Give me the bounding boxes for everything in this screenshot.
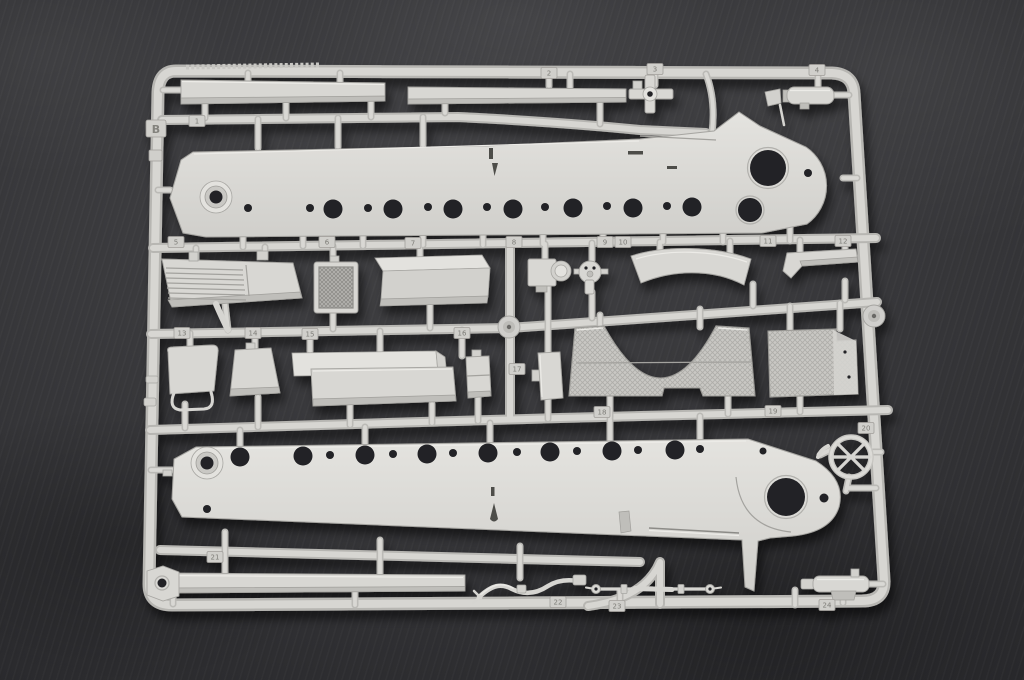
part-number-tag: 6 [319, 237, 335, 248]
svg-text:11: 11 [764, 238, 773, 246]
part-number-tag: 12 [835, 236, 851, 247]
part-cross-fitting [629, 75, 673, 113]
part-long-strip-1 [181, 80, 385, 104]
part-number-tag: 15 [302, 329, 318, 340]
part-number-tag: 7 [405, 238, 421, 249]
svg-text:9: 9 [603, 239, 607, 247]
part-hub-fitting [574, 261, 608, 294]
svg-text:14: 14 [249, 330, 258, 338]
part-number-tag: 20 [858, 423, 874, 434]
part-number-tag: 17 [509, 364, 525, 375]
part-number-tag: 8 [506, 237, 522, 248]
injection-node [498, 316, 520, 338]
svg-text:21: 21 [211, 554, 220, 562]
part-muffler-cylinder [765, 87, 834, 125]
part-number-tag: 2 [541, 68, 557, 79]
part-tie-rod [586, 585, 721, 594]
part-number-tag: 1 [189, 116, 205, 127]
part-stowage-box [375, 255, 490, 306]
svg-text:15: 15 [306, 331, 315, 339]
part-number-tag: 24 [819, 600, 835, 611]
svg-text:23: 23 [613, 603, 622, 611]
svg-text:5: 5 [174, 239, 178, 247]
svg-text:4: 4 [815, 67, 820, 75]
part-number-tag: 16 [454, 328, 470, 339]
part-small-box [466, 350, 491, 398]
part-stepped-boxes [292, 351, 456, 406]
part-number-tag: 4 [809, 65, 825, 76]
sprue-b-frame: B [0, 0, 1024, 680]
svg-text:12: 12 [839, 238, 848, 246]
svg-text:20: 20 [862, 425, 871, 433]
svg-text:22: 22 [554, 599, 563, 607]
svg-text:1: 1 [195, 118, 199, 126]
sprue-letter: B [152, 123, 160, 136]
svg-text:18: 18 [598, 409, 607, 417]
svg-text:19: 19 [769, 408, 778, 416]
part-number-tag: 22 [550, 597, 566, 608]
part-number-tag: 5 [168, 237, 184, 248]
svg-text:17: 17 [513, 366, 522, 374]
part-mesh-grille-small [314, 256, 358, 313]
part-mesh-saddle [569, 326, 755, 396]
svg-text:6: 6 [325, 239, 330, 247]
svg-text:13: 13 [178, 330, 187, 338]
part-curved-fender-strip [631, 248, 751, 285]
part-number-tag: 3 [647, 64, 663, 75]
part-louvered-panel [162, 251, 302, 330]
injection-node [863, 305, 885, 327]
part-angled-strip [783, 249, 858, 278]
part-number-tag: 18 [594, 407, 610, 418]
svg-text:8: 8 [512, 239, 516, 247]
part-number-tag: 11 [760, 236, 776, 247]
part-number-tag: 23 [609, 601, 625, 612]
part-trapezoid-panel [230, 343, 280, 396]
part-long-strip-2 [408, 87, 626, 104]
part-mesh-panel [768, 329, 858, 397]
svg-text:2: 2 [547, 70, 551, 78]
part-number-tag: 9 [597, 237, 613, 248]
part-long-bar [147, 566, 465, 601]
svg-text:3: 3 [653, 66, 657, 74]
svg-text:16: 16 [458, 330, 467, 338]
part-narrow-box [532, 352, 563, 400]
svg-text:10: 10 [619, 239, 628, 247]
photo-of-model-kit-sprue: B [0, 0, 1024, 680]
part-number-tag: 13 [174, 328, 190, 339]
part-number-tag: 14 [245, 328, 261, 339]
part-number-tag: 19 [765, 406, 781, 417]
part-hull-side-upper [170, 112, 827, 237]
part-number-tag: 21 [207, 552, 223, 563]
part-hull-side-lower [163, 439, 840, 591]
svg-text:24: 24 [823, 602, 832, 610]
svg-text:7: 7 [411, 240, 415, 248]
part-number-tag: 10 [615, 237, 631, 248]
